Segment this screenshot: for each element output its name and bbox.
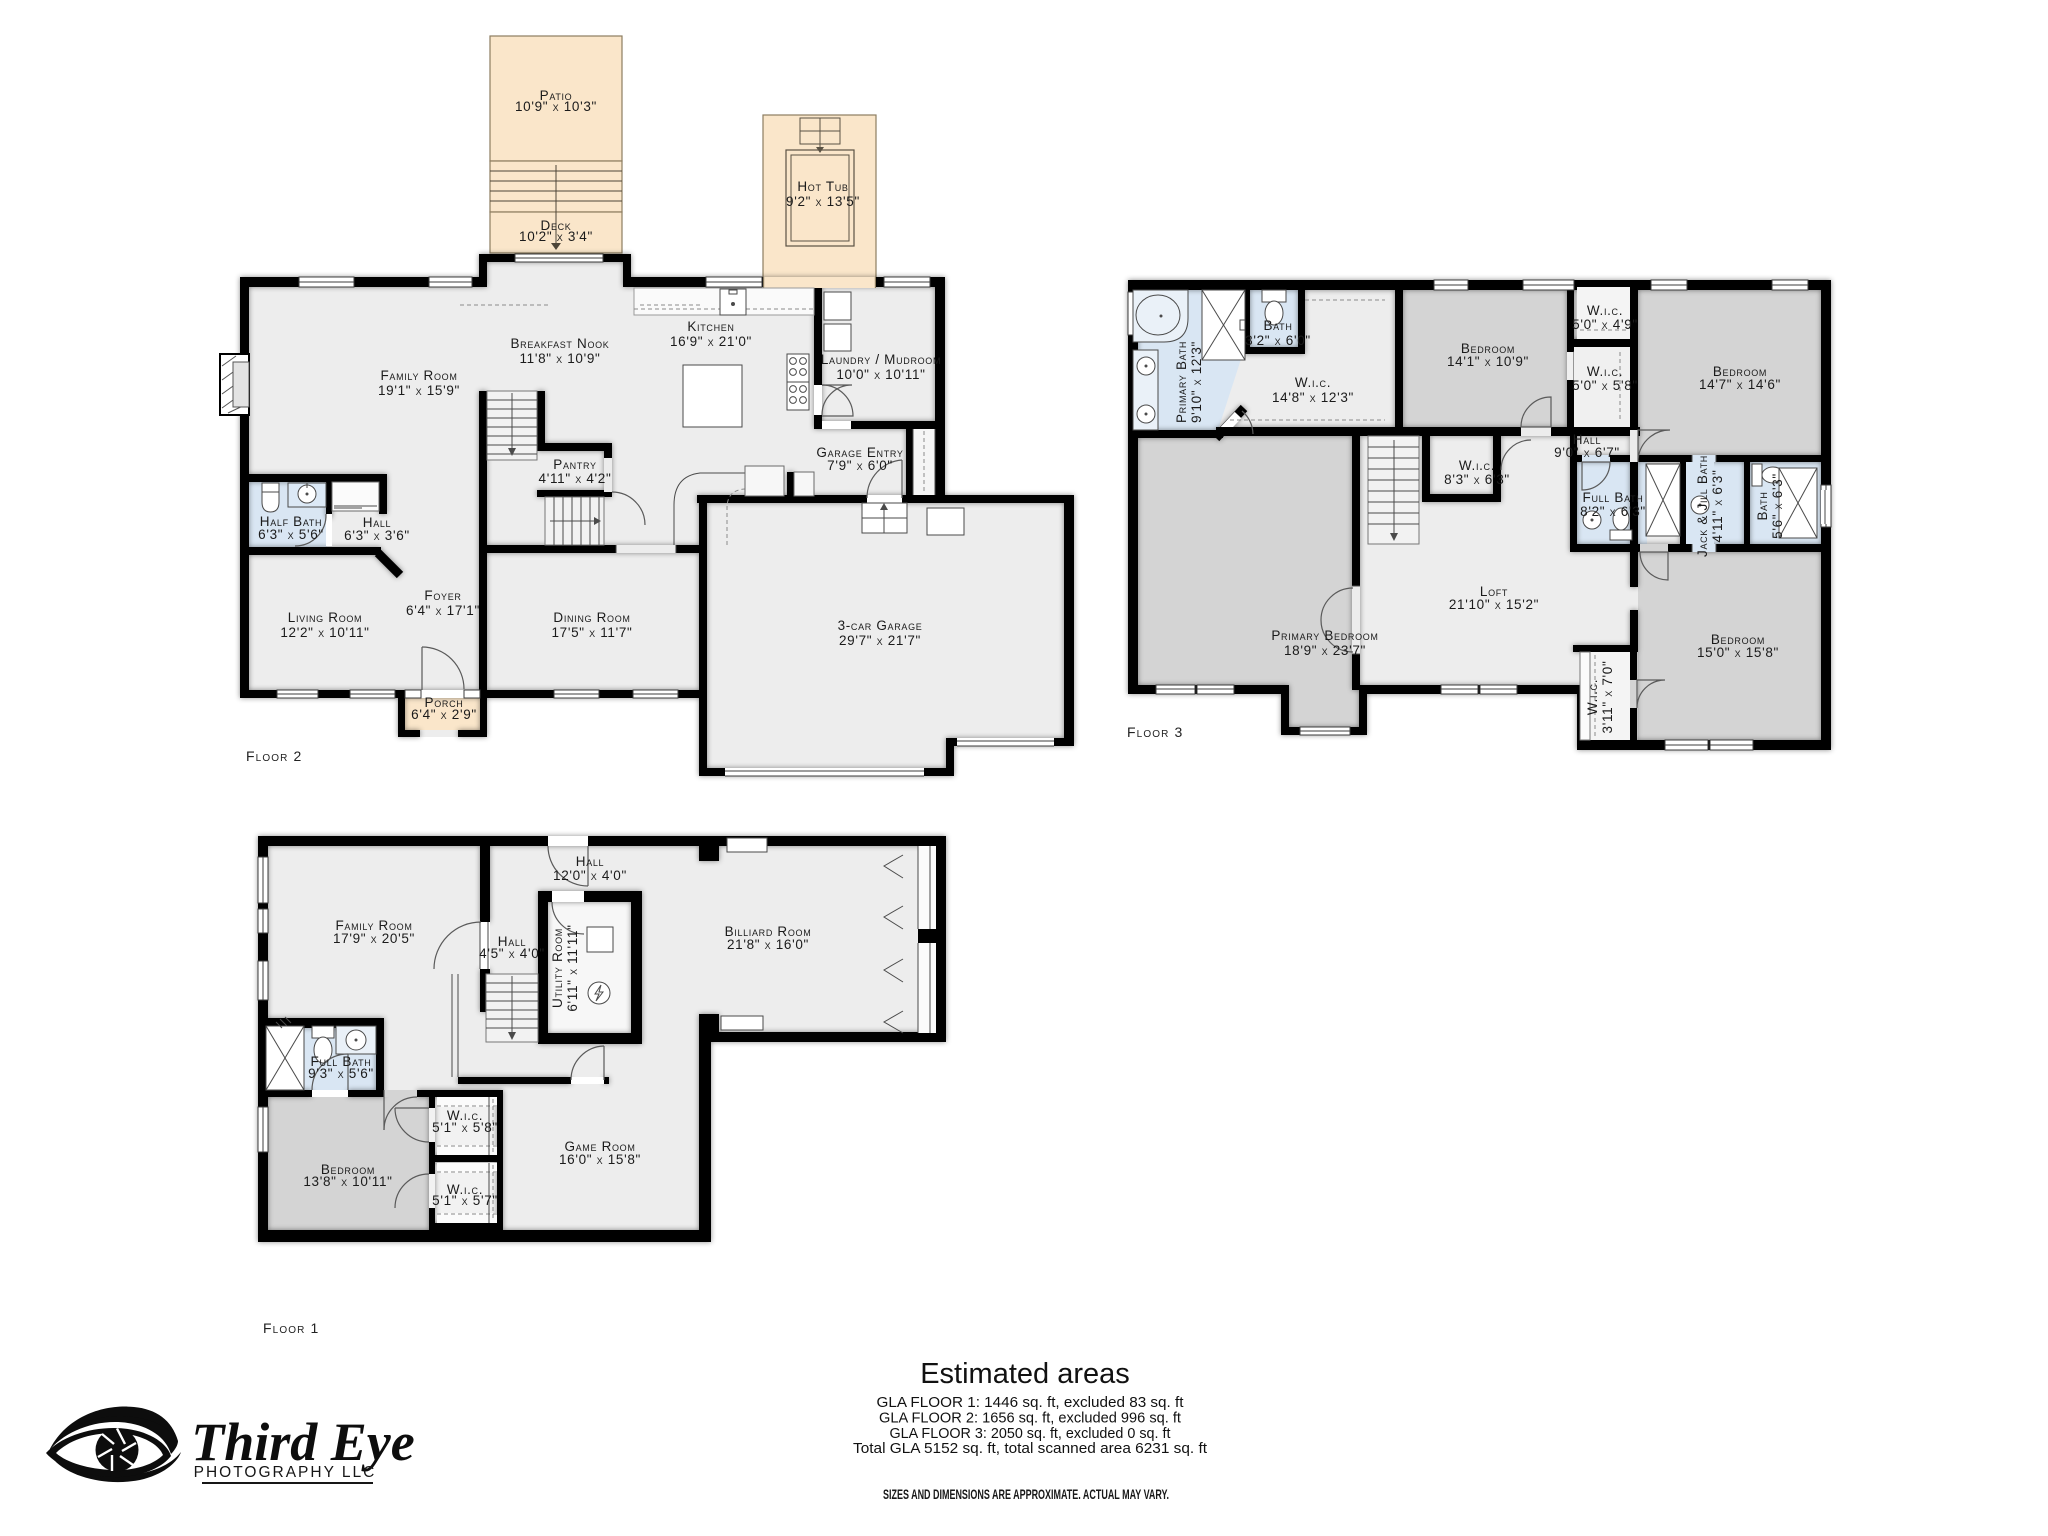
svg-text:Hall: Hall [576,854,604,869]
svg-text:29'7" x 21'7": 29'7" x 21'7" [839,633,921,648]
svg-text:Primary Bedroom: Primary Bedroom [1271,628,1378,643]
svg-text:W.i.c.: W.i.c. [1587,364,1623,379]
svg-text:10'9" x 10'3": 10'9" x 10'3" [515,99,597,114]
svg-text:Family Room: Family Room [380,368,457,383]
svg-text:Bath: Bath [1263,318,1292,333]
svg-text:GLA FLOOR 1: 1446 sq. ft, excl: GLA FLOOR 1: 1446 sq. ft, excluded 83 sq… [877,1395,1184,1411]
svg-text:4'11" x 4'2": 4'11" x 4'2" [539,471,612,486]
svg-text:Utility Room: Utility Room [550,928,565,1008]
svg-text:Hot Tub: Hot Tub [797,179,848,194]
svg-text:21'10" x 15'2": 21'10" x 15'2" [1449,597,1539,612]
svg-text:5'1" x 5'7": 5'1" x 5'7" [432,1193,498,1208]
svg-text:GLA FLOOR 3: 2050 sq. ft, excl: GLA FLOOR 3: 2050 sq. ft, excluded 0 sq.… [890,1426,1171,1442]
svg-text:Total GLA 5152 sq. ft, total s: Total GLA 5152 sq. ft, total scanned are… [853,1441,1207,1457]
svg-text:3'2" x 6'0": 3'2" x 6'0" [1245,333,1311,348]
svg-text:Breakfast Nook: Breakfast Nook [511,336,610,351]
svg-text:9'10" x 12'3": 9'10" x 12'3" [1189,341,1204,423]
svg-text:Foyer: Foyer [424,588,461,603]
svg-text:Bath: Bath [1755,491,1770,520]
svg-text:W.i.c.: W.i.c. [1585,679,1600,715]
svg-text:16'0" x 15'8": 16'0" x 15'8" [559,1152,641,1167]
svg-text:Dining Room: Dining Room [553,610,630,625]
svg-text:W.i.c.: W.i.c. [1459,458,1495,473]
svg-text:6'11" x 11'11": 6'11" x 11'11" [565,924,580,1011]
svg-text:18'9" x 23'7": 18'9" x 23'7" [1284,643,1366,658]
svg-text:6'3" x 5'6": 6'3" x 5'6" [258,527,324,542]
svg-text:6'4" x 17'1": 6'4" x 17'1" [406,603,480,618]
svg-text:W.i.c.: W.i.c. [1587,303,1623,318]
svg-text:12'0" x 4'0": 12'0" x 4'0" [553,868,627,883]
svg-text:Third Eye: Third Eye [191,1412,415,1472]
svg-text:SIZES AND DIMENSIONS ARE APPRO: SIZES AND DIMENSIONS ARE APPROXIMATE. AC… [883,1486,1169,1502]
svg-text:5'0" x 4'9": 5'0" x 4'9" [1572,317,1638,332]
svg-text:19'1" x 15'9": 19'1" x 15'9" [378,383,460,398]
svg-text:W.i.c.: W.i.c. [1295,375,1331,390]
svg-text:17'9" x 20'5": 17'9" x 20'5" [333,931,415,946]
svg-text:14'7" x 14'6": 14'7" x 14'6" [1699,377,1781,392]
svg-text:21'8" x 16'0": 21'8" x 16'0" [727,937,809,952]
svg-text:GLA FLOOR 2: 1656 sq. ft, excl: GLA FLOOR 2: 1656 sq. ft, excluded 996 s… [879,1411,1181,1427]
svg-text:11'8" x 10'9": 11'8" x 10'9" [519,351,600,366]
svg-text:14'8" x 12'3": 14'8" x 12'3" [1272,390,1354,405]
svg-text:Jack & Jill Bath: Jack & Jill Bath [1695,455,1710,557]
svg-text:9'3" x 5'6": 9'3" x 5'6" [308,1066,374,1081]
svg-text:5'1" x 5'8": 5'1" x 5'8" [432,1120,498,1135]
svg-text:10'2" x 3'4": 10'2" x 3'4" [519,229,593,244]
svg-text:Floor 1: Floor 1 [263,1320,319,1336]
svg-text:10'0" x 10'11": 10'0" x 10'11" [836,367,925,382]
svg-text:Kitchen: Kitchen [687,319,734,334]
svg-text:7'9" x 6'0": 7'9" x 6'0" [827,458,893,473]
svg-text:9'0" x 6'7": 9'0" x 6'7" [1554,445,1620,460]
svg-text:Laundry / Mudroom: Laundry / Mudroom [821,352,941,367]
svg-text:12'2" x 10'11": 12'2" x 10'11" [280,625,369,640]
svg-text:5'6" x 6'3": 5'6" x 6'3" [1770,473,1785,539]
svg-text:5'0" x 5'8": 5'0" x 5'8" [1572,378,1638,393]
svg-text:8'2" x 6'3": 8'2" x 6'3" [1580,504,1646,519]
svg-text:Estimated areas: Estimated areas [920,1358,1130,1390]
svg-text:9'2" x 13'5": 9'2" x 13'5" [786,194,860,209]
svg-text:Primary Bath: Primary Bath [1174,341,1189,423]
svg-text:3-car Garage: 3-car Garage [838,618,923,633]
svg-text:13'8" x 10'11": 13'8" x 10'11" [303,1174,392,1189]
svg-text:8'3" x 6'3": 8'3" x 6'3" [1444,472,1510,487]
svg-text:4'11" x 6'3": 4'11" x 6'3" [1710,470,1725,543]
svg-text:6'3" x 3'6": 6'3" x 3'6" [344,528,410,543]
svg-text:PHOTOGRAPHY LLC: PHOTOGRAPHY LLC [194,1464,377,1481]
svg-text:Floor 2: Floor 2 [246,748,302,764]
svg-text:Living Room: Living Room [288,610,362,625]
svg-text:6'4" x 2'9": 6'4" x 2'9" [411,707,477,722]
svg-text:Full Bath: Full Bath [1583,490,1644,505]
svg-text:15'0" x 15'8": 15'0" x 15'8" [1697,645,1779,660]
svg-text:Pantry: Pantry [553,457,596,472]
svg-text:Floor 3: Floor 3 [1127,724,1183,740]
svg-text:16'9" x 21'0": 16'9" x 21'0" [670,334,752,349]
svg-text:3'11" x 7'0": 3'11" x 7'0" [1600,661,1615,734]
svg-text:4'5" x 4'0": 4'5" x 4'0" [479,946,545,961]
svg-text:14'1" x 10'9": 14'1" x 10'9" [1447,354,1529,369]
svg-text:17'5" x 11'7": 17'5" x 11'7" [551,625,632,640]
